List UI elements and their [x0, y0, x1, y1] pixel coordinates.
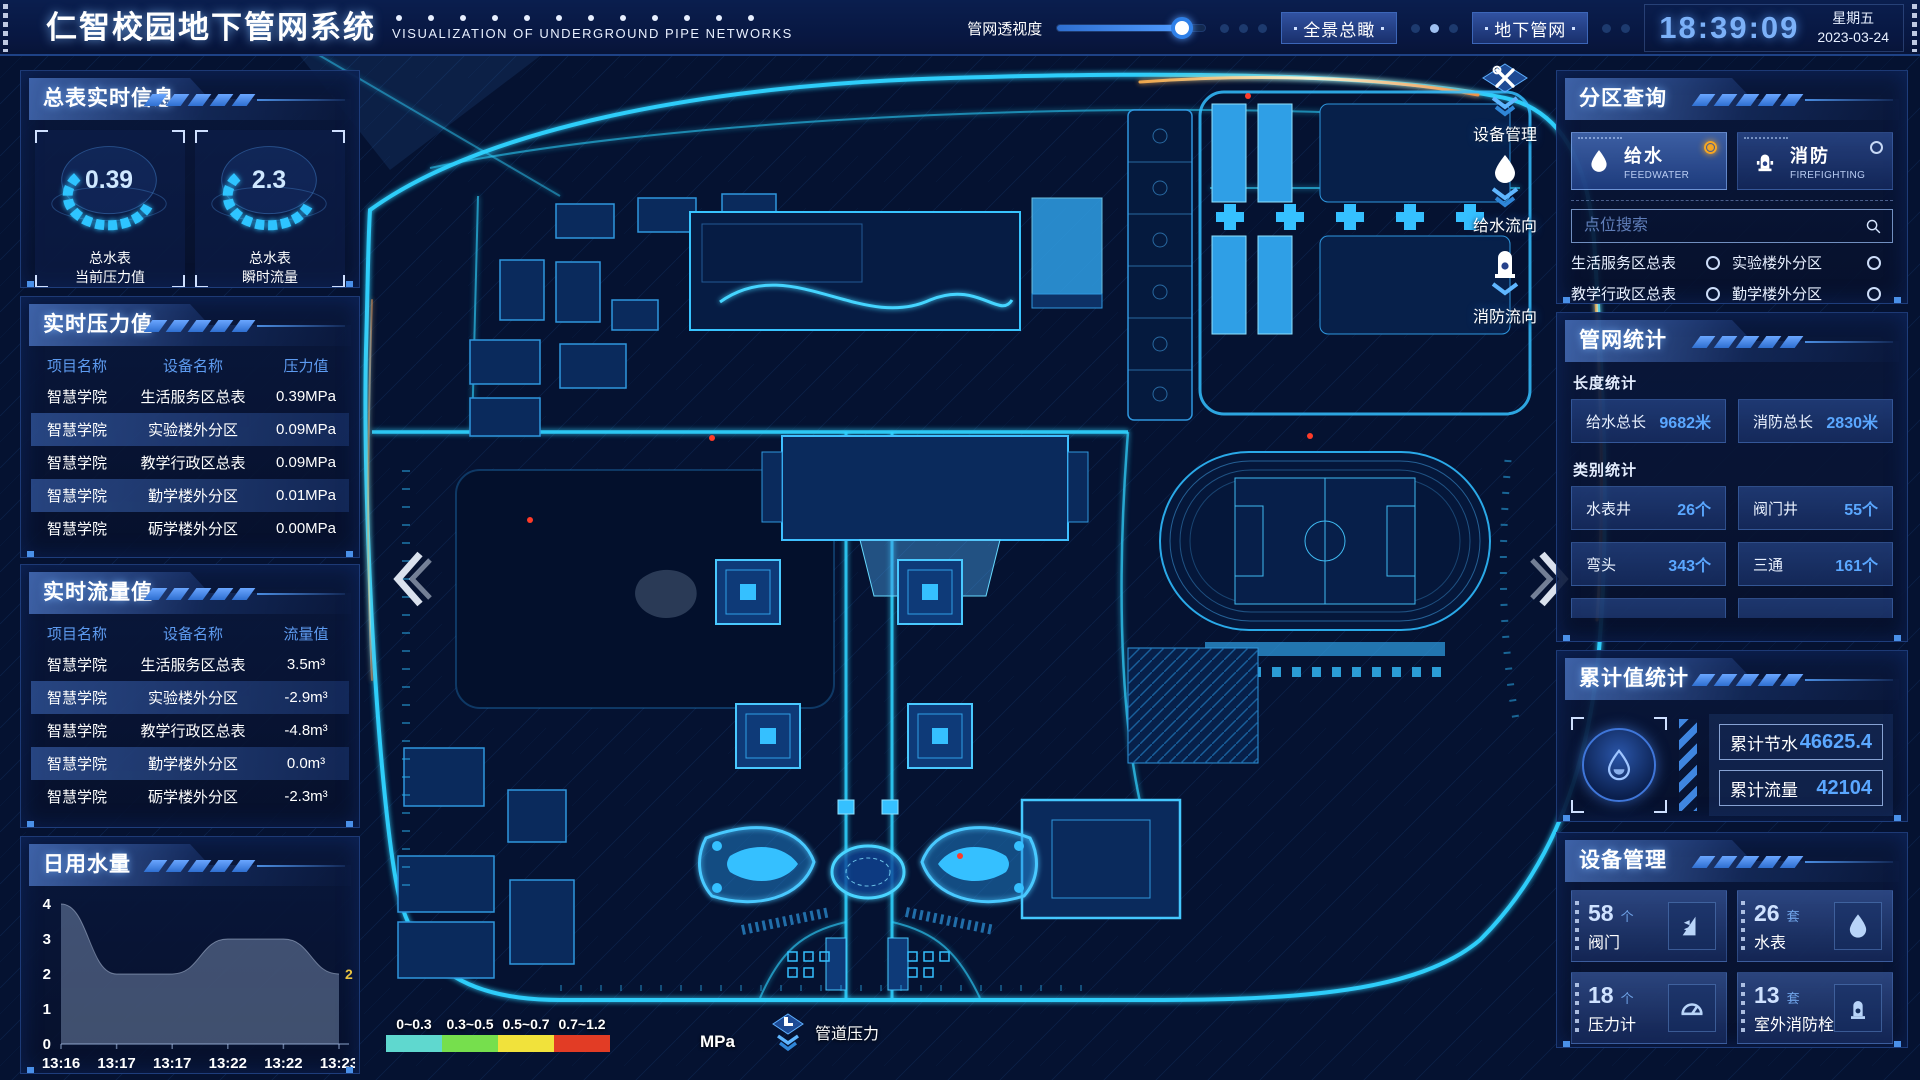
device-count: 13 — [1754, 982, 1780, 1008]
pipe-opacity-slider[interactable] — [1056, 24, 1206, 32]
tools-icon — [1473, 62, 1537, 120]
stat-value: 26个 — [1677, 496, 1711, 520]
map-control-label: 给水流向 — [1473, 212, 1537, 236]
pressure-value: 0.09MPa — [263, 421, 349, 438]
device-name: 生活服务区总表 — [123, 386, 263, 407]
category-stats: 水表井 26个 阀门井 55个 弯头 343个 三通 161个 — [1557, 486, 1907, 586]
stat-label: 阀门井 — [1753, 498, 1798, 519]
device-name: 勤学楼外分区 — [123, 485, 263, 506]
cumulative-saved-water: 累计节水 46625.4 — [1719, 724, 1883, 760]
slashes-decor — [1696, 856, 1799, 868]
section-title: 管网统计 — [1565, 329, 1667, 352]
flow-value: -4.8m³ — [263, 722, 349, 739]
stat-value: 2830米 — [1826, 409, 1878, 433]
column-header: 项目名称 — [31, 623, 123, 644]
flow-value: -2.3m³ — [263, 788, 349, 805]
point-search — [1571, 209, 1893, 243]
device-count: 18 — [1588, 982, 1614, 1008]
pressure-table: 项目名称 设备名称 压力值 智慧学院 生活服务区总表 0.39MPa 智慧学院 … — [31, 350, 349, 538]
water-drop-icon — [1602, 748, 1636, 782]
project-name: 智慧学院 — [31, 452, 123, 473]
stat-label: 弯头 — [1586, 554, 1616, 575]
column-header: 项目名称 — [31, 355, 123, 376]
panel-zone-query: 分区查询 给水 FEEDWATER 消防 FIREFIGHTING — [1556, 70, 1908, 304]
device-unit: 套 — [1787, 991, 1800, 1006]
table-row[interactable]: 智慧学院 勤学楼外分区 0.0m³ — [31, 747, 349, 780]
flow-value: 0.0m³ — [263, 755, 349, 772]
device-count: 26 — [1754, 900, 1780, 926]
slashes-decor — [1696, 674, 1799, 686]
stat-value: 55个 — [1844, 496, 1878, 520]
flow-table-body: 智慧学院 生活服务区总表 3.5m³ 智慧学院 实验楼外分区 -2.9m³ 智慧… — [31, 648, 349, 806]
device-name: 砺学楼外分区 — [123, 518, 263, 538]
clock-weekday: 星期五 — [1832, 9, 1874, 28]
point-search-input[interactable] — [1582, 216, 1857, 236]
device-unit: 套 — [1787, 909, 1800, 924]
project-name: 智慧学院 — [31, 720, 123, 741]
point-list: 生活服务区总表 实验楼外分区 教学行政区总表 勤学楼外分区 砺学楼外分区 宿舍区… — [1557, 247, 1907, 304]
top-header: 仁智校园地下管网系统 VISUALIZATION OF UNDERGROUND … — [0, 0, 1920, 56]
pressure-value: 0.09MPa — [263, 454, 349, 471]
map-control-feedwater-flow[interactable]: 给水流向 — [1473, 153, 1537, 236]
device-card-hydrants[interactable]: 13套 室外消防栓 — [1737, 972, 1893, 1044]
stat-box — [1571, 598, 1726, 618]
project-name: 智慧学院 — [31, 485, 123, 506]
point-radio[interactable] — [1867, 256, 1881, 270]
legend-color-segment — [442, 1035, 498, 1052]
tab-label: 给水 — [1624, 142, 1689, 168]
pressure-value: 0.01MPa — [263, 487, 349, 504]
device-label: 水表 — [1754, 929, 1800, 953]
stat-value: 9682米 — [1659, 409, 1711, 433]
section-title: 日用水量 — [29, 853, 131, 876]
gauge-label: 总水表 — [195, 249, 345, 268]
stat-label: 累计流量 — [1730, 776, 1798, 801]
device-card-pressure-gauges[interactable]: 18个 压力计 — [1571, 972, 1727, 1044]
library-building — [1022, 800, 1180, 918]
svg-text:0: 0 — [43, 1036, 51, 1053]
stat-box: 弯头 343个 — [1571, 542, 1726, 586]
stat-value: 343个 — [1668, 552, 1711, 576]
svg-text:13:23: 13:23 — [320, 1055, 355, 1072]
svg-text:2: 2 — [43, 966, 51, 983]
header-right-decor — [1912, 4, 1917, 52]
category-stats-title: 类别统计 — [1557, 443, 1907, 486]
table-row[interactable]: 智慧学院 生活服务区总表 0.39MPa — [31, 380, 349, 413]
point-radio[interactable] — [1706, 256, 1720, 270]
device-label: 室外消防栓 — [1754, 1011, 1834, 1035]
overview-button[interactable]: 全景总瞰 — [1281, 12, 1397, 44]
dots-decor — [1220, 24, 1267, 33]
dots-decor — [1411, 24, 1458, 33]
svg-text:13:16: 13:16 — [42, 1055, 80, 1072]
column-header: 流量值 — [263, 623, 349, 644]
valve-icon — [1668, 902, 1716, 950]
column-header: 设备名称 — [123, 623, 263, 644]
point-list-item[interactable]: 实验楼外分区 — [1732, 247, 1893, 278]
clipped-stats-row — [1557, 598, 1907, 618]
project-name: 智慧学院 — [31, 786, 123, 806]
legend-range-label: 0.7~1.2 — [554, 1016, 610, 1032]
stat-value: 161个 — [1835, 552, 1878, 576]
cumulative-flow: 累计流量 42104 — [1719, 770, 1883, 806]
legend-unit: MPa — [700, 1032, 735, 1052]
tab-sublabel: FEEDWATER — [1624, 170, 1689, 181]
slashes-decor — [148, 94, 251, 106]
stat-box: 消防总长 2830米 — [1738, 399, 1893, 443]
map-control-column: 设备管理 给水流向 消防流向 — [1452, 62, 1558, 335]
stat-box: 给水总长 9682米 — [1571, 399, 1726, 443]
tab-feedwater[interactable]: 给水 FEEDWATER — [1571, 132, 1727, 190]
slashes-decor — [1696, 336, 1799, 348]
pipe-pressure-icon[interactable] — [771, 1012, 805, 1052]
device-name: 教学行政区总表 — [123, 720, 263, 741]
device-name: 勤学楼外分区 — [123, 753, 263, 774]
flow-gauge-card: 2.3 总水表 瞬时流量 — [195, 130, 345, 288]
svg-text:4: 4 — [43, 896, 52, 913]
stat-value: 42104 — [1816, 777, 1872, 800]
pressure-table-body: 智慧学院 生活服务区总表 0.39MPa 智慧学院 实验楼外分区 0.09MPa… — [31, 380, 349, 538]
legend-labels: 0~0.30.3~0.50.5~0.70.7~1.2 — [386, 1016, 610, 1032]
legend-color-segment — [386, 1035, 442, 1052]
gauge-label: 瞬时流量 — [195, 268, 345, 287]
legend-bar — [386, 1035, 610, 1052]
daily-water-chart: 0123413:1613:1713:1713:2213:2213:232 — [25, 890, 355, 1074]
section-title: 累计值统计 — [1565, 667, 1689, 690]
svg-text:13:17: 13:17 — [153, 1055, 191, 1072]
panel-daily-water: 日用水量 0123413:1613:1713:1713:2213:2213:23… — [20, 836, 360, 1074]
basketball-courts — [1128, 110, 1192, 420]
map-control-device-manage[interactable]: 设备管理 — [1473, 62, 1537, 145]
panel-realtime-pressure: 实时压力值 项目名称 设备名称 压力值 智慧学院 生活服务区总表 0.39MPa… — [20, 296, 360, 558]
device-label: 阀门 — [1588, 929, 1634, 953]
point-list-item[interactable]: 勤学楼外分区 — [1732, 278, 1893, 304]
tab-sublabel: FIREFIGHTING — [1790, 170, 1865, 181]
column-header: 设备名称 — [123, 355, 263, 376]
flow-value: -2.9m³ — [263, 689, 349, 706]
tab-radio[interactable] — [1870, 141, 1883, 154]
section-title: 分区查询 — [1565, 87, 1667, 110]
svg-text:2.3: 2.3 — [252, 167, 286, 194]
carousel-left-arrow[interactable] — [388, 548, 434, 615]
project-name: 智慧学院 — [31, 518, 123, 538]
device-name: 实验楼外分区 — [123, 687, 263, 708]
point-list-item[interactable]: 教学行政区总表 — [1571, 278, 1732, 304]
legend-color-segment — [554, 1035, 610, 1052]
app-title: 仁智校园地下管网系统 — [46, 12, 376, 43]
panel-devices: 设备管理 58个 阀门 26套 水表 18个 压力计 13套 — [1556, 832, 1908, 1048]
map-control-fire-flow[interactable]: 消防流向 — [1473, 244, 1537, 327]
stat-label: 累计节水 — [1730, 730, 1798, 755]
hydrant-icon — [1834, 984, 1882, 1032]
project-name: 智慧学院 — [31, 386, 123, 407]
water-meter-icon — [1834, 902, 1882, 950]
project-name: 智慧学院 — [31, 654, 123, 675]
point-list-item[interactable]: 生活服务区总表 — [1571, 247, 1732, 278]
stat-box: 三通 161个 — [1738, 542, 1893, 586]
point-radio[interactable] — [1867, 287, 1881, 301]
hydrant-icon — [1752, 148, 1778, 174]
svg-text:13:22: 13:22 — [264, 1055, 302, 1072]
stat-box: 水表井 26个 — [1571, 486, 1726, 530]
svg-text:2: 2 — [345, 966, 353, 982]
stat-value: 46625.4 — [1800, 731, 1872, 754]
length-stats-title: 长度统计 — [1557, 366, 1907, 399]
section-title: 实时流量值 — [29, 581, 153, 604]
device-unit: 个 — [1621, 909, 1634, 924]
app-subtitle: VISUALIZATION OF UNDERGROUND PIPE NETWOR… — [392, 26, 793, 41]
panel-meter-info: 总表实时信息 0.39 总水表 当前压力值 2.3 — [20, 70, 360, 288]
table-row[interactable]: 智慧学院 勤学楼外分区 0.01MPa — [31, 479, 349, 512]
water-emblem — [1571, 717, 1667, 813]
slider-thumb[interactable] — [1171, 17, 1193, 39]
pressure-gauge-icon — [1668, 984, 1716, 1032]
column-header: 压力值 — [263, 355, 349, 376]
flow-table: 项目名称 设备名称 流量值 智慧学院 生活服务区总表 3.5m³ 智慧学院 实验… — [31, 618, 349, 806]
panel-pipe-stats: 管网统计 长度统计 给水总长 9682米 消防总长 2830米 类别统计 水表井… — [1556, 312, 1908, 642]
panel-realtime-flow: 实时流量值 项目名称 设备名称 流量值 智慧学院 生活服务区总表 3.5m³ 智… — [20, 564, 360, 828]
svg-text:13:17: 13:17 — [97, 1055, 135, 1072]
stat-label: 水表井 — [1586, 498, 1631, 519]
device-unit: 个 — [1621, 991, 1634, 1006]
clock-date: 2023-03-24 — [1817, 28, 1889, 47]
point-label: 实验楼外分区 — [1732, 252, 1822, 273]
water-drop-icon — [1586, 148, 1612, 174]
slashes-decor — [148, 860, 251, 872]
pressure-gauge: 0.39 — [35, 132, 183, 244]
tab-label: 消防 — [1790, 142, 1865, 168]
pressure-legend: 0~0.30.3~0.50.5~0.70.7~1.2 MPa 管道压力 — [386, 1012, 879, 1052]
slashes-decor — [148, 588, 251, 600]
table-row[interactable]: 智慧学院 生活服务区总表 3.5m³ — [31, 648, 349, 681]
section-title: 实时压力值 — [29, 313, 153, 336]
legend-range-label: 0.3~0.5 — [442, 1016, 498, 1032]
flow-gauge: 2.3 — [195, 132, 343, 244]
table-row[interactable]: 智慧学院 砺学楼外分区 0.00MPa — [31, 512, 349, 538]
pressure-gauge-card: 0.39 总水表 当前压力值 — [35, 130, 185, 288]
map-control-label: 消防流向 — [1473, 303, 1537, 327]
device-card-water-meters[interactable]: 26套 水表 — [1737, 890, 1893, 962]
point-label: 教学行政区总表 — [1571, 283, 1676, 304]
legend-title[interactable]: 管道压力 — [815, 1020, 879, 1044]
table-row[interactable]: 智慧学院 教学行政区总表 -4.8m³ — [31, 714, 349, 747]
project-name: 智慧学院 — [31, 419, 123, 440]
map-control-label: 设备管理 — [1473, 121, 1537, 145]
svg-text:13:22: 13:22 — [209, 1055, 247, 1072]
stat-label: 消防总长 — [1753, 411, 1813, 432]
solar-yard — [1128, 648, 1258, 763]
clock-box: 18:39:09 星期五 2023-03-24 — [1644, 4, 1904, 52]
table-row[interactable]: 智慧学院 实验楼外分区 0.09MPa — [31, 413, 349, 446]
slider-fill — [1057, 25, 1181, 31]
gauge-label: 总水表 — [35, 249, 185, 268]
panel-cumulative: 累计值统计 累计节水 46625.4 累计流量 42104 — [1556, 650, 1908, 822]
legend-range-label: 0.5~0.7 — [498, 1016, 554, 1032]
point-radio[interactable] — [1706, 287, 1720, 301]
underground-pipes-button[interactable]: 地下管网 — [1472, 12, 1588, 44]
point-label: 生活服务区总表 — [1571, 252, 1676, 273]
svg-text:1: 1 — [43, 1001, 51, 1018]
svg-text:0.39: 0.39 — [85, 167, 133, 194]
device-name: 砺学楼外分区 — [123, 786, 263, 806]
device-count: 58 — [1588, 900, 1614, 926]
clock-time: 18:39:09 — [1659, 10, 1799, 46]
stripe-decor — [1679, 719, 1697, 811]
title-dots-decor — [392, 15, 793, 21]
tab-firefighting[interactable]: 消防 FIREFIGHTING — [1737, 132, 1893, 190]
stat-box: 阀门井 55个 — [1738, 486, 1893, 530]
gauge-label: 当前压力值 — [35, 268, 185, 287]
stat-label: 给水总长 — [1586, 411, 1646, 432]
brand: 仁智校园地下管网系统 VISUALIZATION OF UNDERGROUND … — [46, 12, 793, 43]
project-name: 智慧学院 — [31, 753, 123, 774]
search-icon[interactable] — [1865, 218, 1882, 235]
stat-label: 三通 — [1753, 554, 1783, 575]
device-label: 压力计 — [1588, 1011, 1636, 1035]
header-left-decor — [3, 4, 8, 52]
project-name: 智慧学院 — [31, 687, 123, 708]
table-row[interactable]: 智慧学院 砺学楼外分区 -2.3m³ — [31, 780, 349, 806]
point-label: 勤学楼外分区 — [1732, 283, 1822, 304]
pipe-opacity-label: 管网透视度 — [967, 18, 1042, 39]
svg-text:3: 3 — [43, 931, 51, 948]
water-drop-icon — [1473, 153, 1537, 211]
legend-color-segment — [498, 1035, 554, 1052]
table-row[interactable]: 智慧学院 教学行政区总表 0.09MPa — [31, 446, 349, 479]
dots-decor — [1602, 24, 1630, 33]
section-title: 设备管理 — [1565, 849, 1667, 872]
tab-radio-selected[interactable] — [1704, 141, 1717, 154]
hydrant-icon — [1473, 244, 1537, 302]
legend-range-label: 0~0.3 — [386, 1016, 442, 1032]
length-stats: 给水总长 9682米 消防总长 2830米 — [1557, 399, 1907, 443]
device-name: 教学行政区总表 — [123, 452, 263, 473]
device-name: 生活服务区总表 — [123, 654, 263, 675]
pressure-value: 0.39MPa — [263, 388, 349, 405]
slashes-decor — [1696, 94, 1799, 106]
pressure-value: 0.00MPa — [263, 520, 349, 537]
table-row[interactable]: 智慧学院 实验楼外分区 -2.9m³ — [31, 681, 349, 714]
slashes-decor — [148, 320, 251, 332]
device-name: 实验楼外分区 — [123, 419, 263, 440]
stat-box — [1738, 598, 1893, 618]
dashed-divider — [1571, 200, 1893, 201]
flow-value: 3.5m³ — [263, 656, 349, 673]
device-card-valves[interactable]: 58个 阀门 — [1571, 890, 1727, 962]
